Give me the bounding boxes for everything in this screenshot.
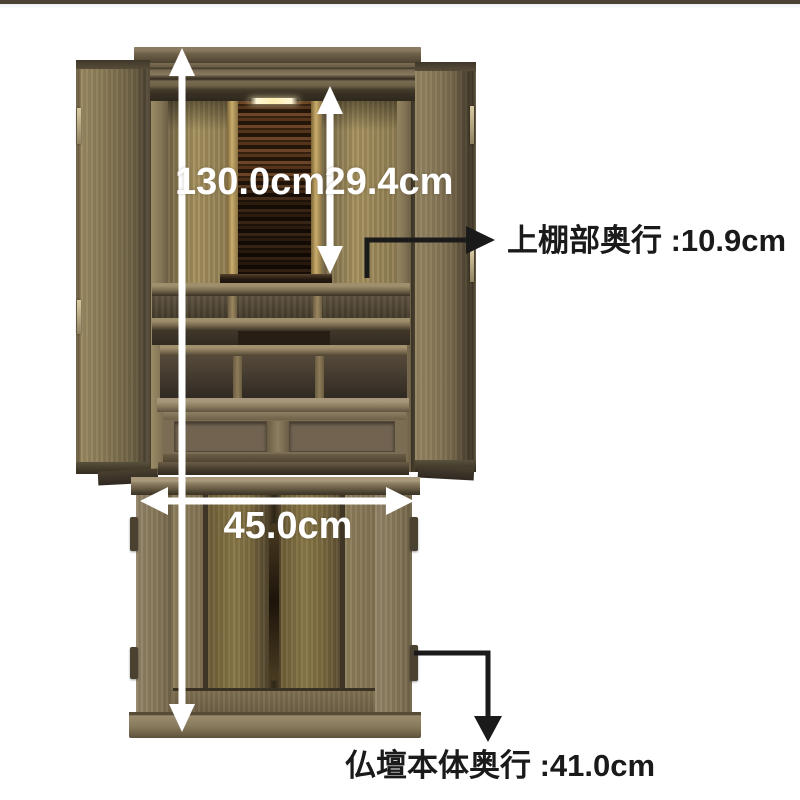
lower-stile-right	[375, 495, 412, 712]
upper-cabinet-bottom-rail	[158, 462, 409, 475]
dimension-label-lower-width: 45.0cm	[224, 507, 353, 545]
hinge-right-door-upper	[470, 106, 474, 144]
hinge-left-door-lower	[77, 300, 81, 334]
lower-stile-left	[136, 495, 173, 712]
lower-door-stile-left	[173, 495, 203, 688]
dimension-label-body-depth: 仏壇本体奥行 :41.0cm	[345, 750, 655, 781]
butsudan-dimension-diagram: 130.0cm 29.4cm 45.0cm 上棚部奥行 :10.9cm 仏壇本体…	[0, 0, 800, 800]
dimension-label-upper-shelf-depth: 上棚部奥行 :10.9cm	[507, 225, 786, 256]
drawer-center-stile	[267, 421, 289, 452]
open-shelf-recess	[160, 356, 407, 398]
lower-hinge-left-lower	[130, 647, 138, 679]
shelf-recess-2-dark-center	[238, 331, 330, 345]
upper-door-right	[415, 62, 476, 472]
dimension-label-total-height: 130.0cm	[175, 163, 325, 201]
altar-cornice-molding	[149, 63, 416, 101]
lower-cabinet-plinth	[129, 712, 421, 738]
shelf-recess-1	[152, 296, 410, 318]
interior-led-light	[249, 98, 299, 104]
arrow-body-depth	[414, 653, 502, 742]
altar-top-board	[134, 47, 421, 64]
dimension-label-upper-inner-height: 29.4cm	[325, 163, 454, 201]
shelf-board-1	[152, 283, 410, 296]
open-shelf-post-right	[315, 356, 324, 398]
top-accent-fade	[0, 4, 800, 9]
lower-bottom-rail	[173, 691, 375, 712]
hinge-right-door-lower	[470, 250, 474, 282]
door-top-edge	[415, 62, 476, 71]
shelf-board-3	[160, 345, 407, 356]
hinge-left-door-upper	[77, 108, 81, 144]
lower-hinge-right-lower	[410, 645, 418, 681]
shelf-divider-2	[313, 296, 322, 318]
door-top-edge	[76, 60, 150, 69]
drawer-front-left	[174, 421, 267, 452]
lower-hinge-left-upper	[130, 517, 138, 551]
drawer-front-right	[289, 421, 395, 452]
altar-table-top	[157, 398, 409, 412]
shelf-divider-1	[228, 296, 237, 318]
door-bottom-shadow-right	[418, 465, 475, 481]
lower-hinge-right-upper	[410, 517, 418, 551]
drawer-rail-bottom	[163, 454, 406, 462]
lower-cabinet-top-molding	[131, 477, 420, 495]
upper-door-left	[76, 60, 150, 474]
open-shelf-post-left	[233, 356, 242, 398]
shelf-board-2	[152, 318, 410, 331]
drawer-rail-top	[163, 412, 406, 420]
drawer-unit	[163, 412, 406, 462]
